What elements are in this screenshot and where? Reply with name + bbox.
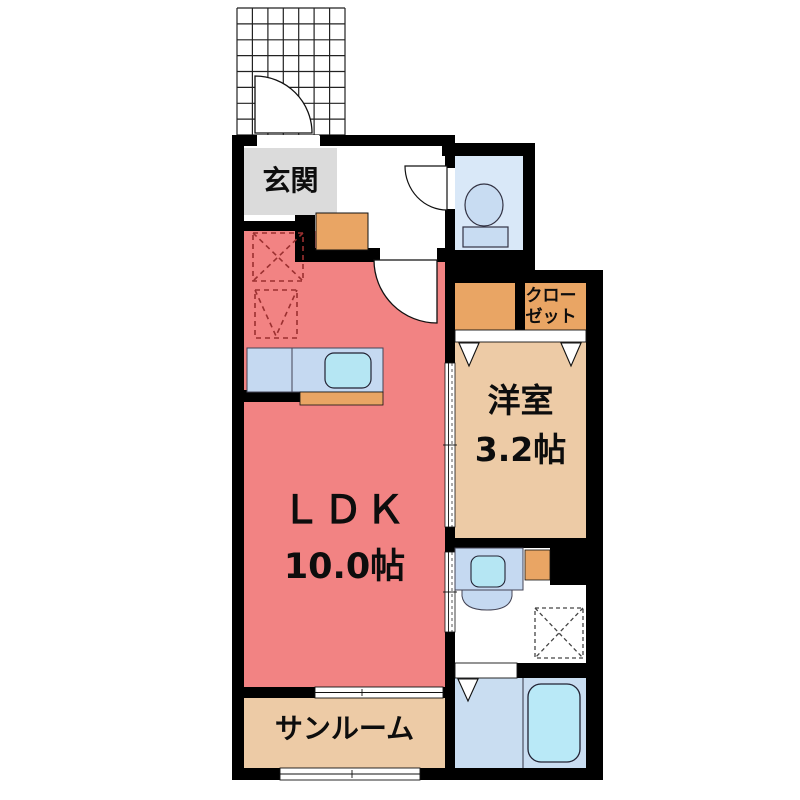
wall-segment	[550, 548, 586, 585]
wall-segment	[295, 215, 315, 262]
ldk-label: ＬＤＫ	[244, 490, 445, 533]
wall-segment	[445, 209, 455, 250]
ldk-size-label: 10.0帖	[244, 548, 445, 587]
shoe-cabinet	[316, 213, 368, 250]
wall-segment	[437, 248, 455, 262]
front-doorway-gap	[257, 135, 319, 146]
wall-segment	[586, 270, 603, 780]
wall-segment	[445, 632, 455, 768]
closet-label-line1: クロー	[516, 286, 586, 307]
wall-segment	[445, 148, 455, 168]
closet-label-line2: ゼット	[516, 307, 586, 328]
washroom-cabinet	[525, 550, 550, 580]
counter-front-panel	[300, 392, 383, 405]
genkan-label: 玄関	[244, 166, 337, 197]
western-room-label: 洋室	[455, 383, 586, 419]
wall-segment	[442, 143, 535, 156]
sunroom-label: サンルーム	[244, 714, 445, 745]
wall-segment	[445, 538, 602, 548]
wall-segment	[232, 135, 244, 780]
wall-segment	[320, 135, 455, 146]
floor-plan-graphic	[0, 0, 800, 800]
western-room-size-label: 3.2帖	[455, 432, 586, 468]
entrance-door-arc	[255, 76, 312, 133]
bathtub-icon	[528, 684, 580, 762]
floor-plan: 玄関 クロー ゼット 洋室 3.2帖 ＬＤＫ 10.0帖 サンルーム	[0, 0, 800, 800]
kitchen-sink-icon	[325, 353, 371, 388]
wall-segment	[445, 283, 455, 363]
closet-label: クロー ゼット	[516, 286, 586, 328]
window-sunroom-exterior	[280, 768, 420, 780]
window-ldk-sunroom	[315, 687, 443, 698]
